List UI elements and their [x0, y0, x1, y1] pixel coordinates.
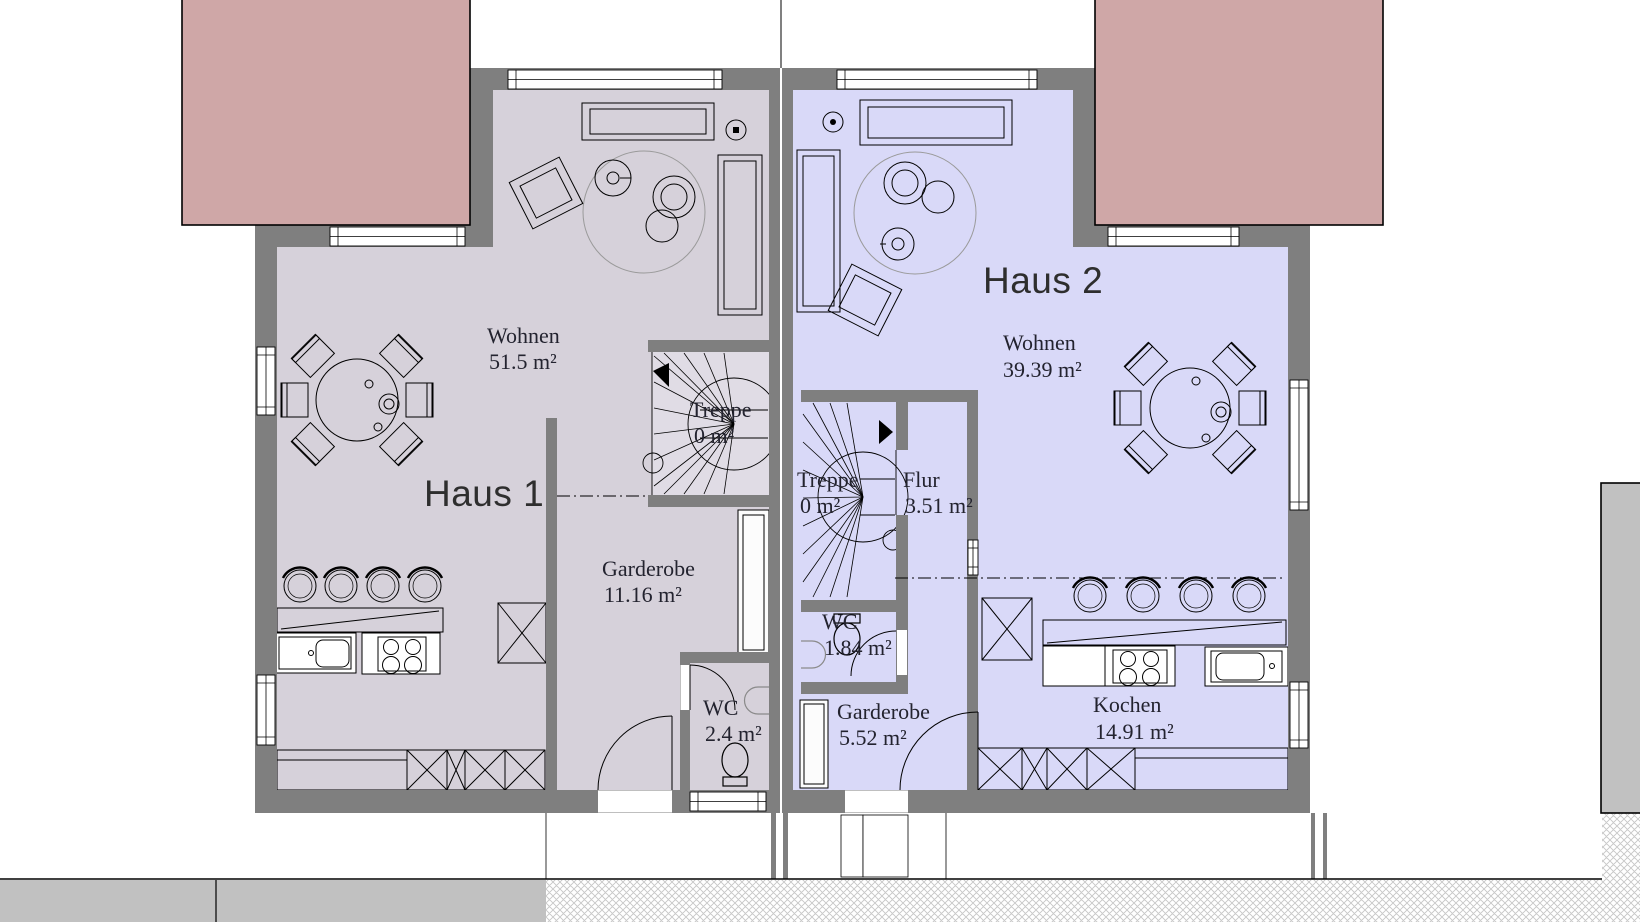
haus2-garderobe-cabinet [800, 700, 828, 788]
window-icon [508, 70, 722, 89]
room-area-h1-wc: 2.4 m² [705, 721, 762, 746]
house-title-haus2: Haus 2 [983, 260, 1103, 301]
door-opening [897, 630, 907, 675]
hatched-strip-right [1602, 813, 1640, 922]
room-area-h2-garderobe: 5.52 m² [839, 725, 907, 750]
room-label-h1-wc: WC [703, 695, 738, 720]
window-icon [1290, 380, 1308, 510]
room-label-h1-treppe: Treppe [690, 397, 752, 422]
room-label-h2-wohnen: Wohnen [1003, 330, 1076, 355]
room-area-h1-garderobe: 11.16 m² [604, 582, 682, 607]
room-area-h1-wohnen: 51.5 m² [489, 349, 557, 374]
room-label-h2-garderobe: Garderobe [837, 699, 930, 724]
floor-plan-canvas: Haus 1 Haus 2 Wohnen 51.5 m² Treppe 0 m²… [0, 0, 1640, 922]
room-label-h2-treppe: Treppe [797, 467, 859, 492]
window-icon [257, 675, 275, 745]
street-strip [0, 880, 546, 922]
room-label-h1-garderobe: Garderobe [602, 556, 695, 581]
window-icon [1290, 682, 1308, 748]
party-wall [782, 68, 793, 813]
floor-plan-svg: Haus 1 Haus 2 Wohnen 51.5 m² Treppe 0 m²… [0, 0, 1640, 922]
door-opening [598, 791, 672, 813]
entrance-steps [841, 815, 908, 877]
room-area-h2-treppe: 0 m² [800, 493, 841, 518]
haus1-garderobe-cabinet [738, 510, 769, 655]
room-area-h2-flur: 3.51 m² [905, 493, 973, 518]
door-opening [845, 791, 908, 813]
house-title-haus1: Haus 1 [424, 473, 544, 514]
party-wall [769, 68, 780, 813]
room-area-h2-kochen: 14.91 m² [1095, 719, 1174, 744]
stove [362, 633, 440, 674]
hatched-strip-bottom [546, 880, 1640, 922]
room-label-h2-kochen: Kochen [1093, 692, 1161, 717]
room-area-h2-wohnen: 39.39 m² [1003, 357, 1082, 382]
neighbor-parcel [1601, 483, 1640, 813]
window-icon [837, 70, 1037, 89]
window-icon [968, 540, 978, 575]
door-opening [681, 665, 691, 710]
party-wall-gap [780, 68, 782, 813]
stove [1105, 646, 1175, 686]
roof-overhang-haus1 [182, 0, 470, 225]
roof-overhang-haus2 [1095, 0, 1383, 225]
window-icon [1108, 227, 1239, 246]
window-icon [257, 347, 275, 415]
window-icon [690, 792, 766, 811]
room-area-h2-wc: 1.84 m² [824, 635, 892, 660]
room-label-h2-flur: Flur [903, 467, 940, 492]
room-label-h2-wc: WC [822, 609, 857, 634]
window-icon [330, 227, 465, 246]
room-label-h1-wohnen: Wohnen [487, 323, 560, 348]
room-area-h1-treppe: 0 m² [694, 423, 735, 448]
